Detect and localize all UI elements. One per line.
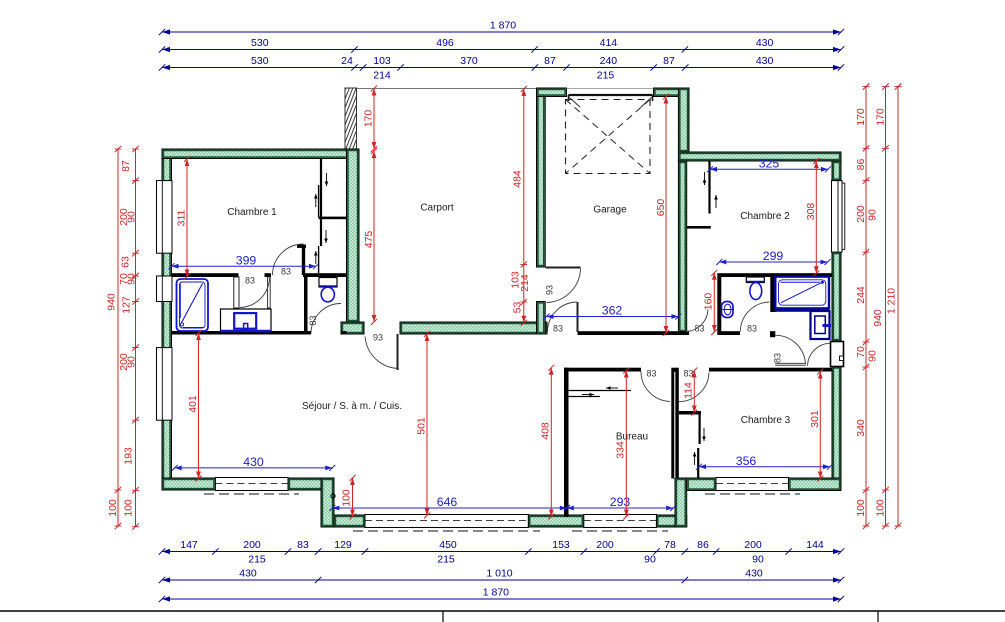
svg-text:200: 200 (243, 539, 261, 551)
svg-text:646: 646 (437, 495, 458, 509)
svg-text:114: 114 (683, 382, 695, 399)
svg-text:90: 90 (126, 273, 138, 285)
svg-text:334: 334 (615, 441, 627, 459)
svg-text:90: 90 (126, 356, 138, 368)
svg-text:200: 200 (596, 539, 614, 551)
svg-text:170: 170 (363, 110, 375, 128)
svg-text:90: 90 (644, 554, 656, 566)
svg-text:301: 301 (809, 410, 821, 428)
svg-text:147: 147 (180, 539, 198, 551)
svg-text:340: 340 (855, 419, 867, 437)
svg-text:90: 90 (867, 350, 879, 362)
svg-text:83: 83 (747, 324, 757, 334)
svg-text:Chambre 1: Chambre 1 (227, 207, 277, 218)
svg-text:293: 293 (610, 495, 631, 509)
svg-text:200: 200 (855, 205, 867, 223)
svg-text:1 870: 1 870 (490, 20, 516, 32)
svg-text:299: 299 (763, 249, 784, 263)
svg-text:430: 430 (756, 37, 774, 49)
svg-text:63: 63 (120, 256, 132, 268)
svg-text:430: 430 (243, 455, 264, 469)
svg-text:83: 83 (773, 353, 783, 363)
svg-text:399: 399 (236, 253, 257, 267)
svg-text:87: 87 (120, 160, 132, 172)
svg-text:450: 450 (439, 539, 457, 551)
svg-text:Séjour / S. à m. / Cuis.: Séjour / S. à m. / Cuis. (302, 401, 402, 412)
svg-text:Bureau: Bureau (616, 432, 648, 443)
svg-text:200: 200 (744, 539, 762, 551)
svg-text:160: 160 (703, 293, 715, 311)
svg-text:78: 78 (664, 539, 676, 551)
svg-text:Carport: Carport (420, 203, 454, 214)
svg-text:100: 100 (341, 489, 353, 507)
svg-text:83: 83 (646, 369, 656, 379)
svg-text:496: 496 (436, 37, 454, 49)
svg-text:127: 127 (121, 296, 133, 314)
svg-text:1 010: 1 010 (486, 568, 512, 580)
svg-text:311: 311 (176, 209, 188, 226)
svg-text:100: 100 (107, 499, 119, 517)
svg-text:103: 103 (373, 55, 391, 67)
svg-text:93: 93 (373, 333, 383, 343)
svg-text:83: 83 (308, 315, 318, 325)
svg-text:170: 170 (855, 108, 867, 126)
svg-text:Garage: Garage (593, 205, 627, 216)
svg-text:87: 87 (544, 55, 556, 67)
svg-text:86: 86 (697, 539, 709, 551)
svg-text:Chambre 2: Chambre 2 (740, 211, 790, 222)
svg-text:650: 650 (655, 199, 667, 217)
svg-text:129: 129 (334, 539, 352, 551)
svg-text:370: 370 (460, 55, 478, 67)
svg-text:70: 70 (855, 346, 867, 358)
svg-text:83: 83 (245, 276, 255, 286)
svg-text:83: 83 (694, 324, 704, 334)
svg-text:1 210: 1 210 (886, 288, 898, 314)
svg-text:940: 940 (872, 309, 884, 327)
svg-text:940: 940 (106, 293, 118, 311)
svg-text:356: 356 (736, 454, 757, 468)
svg-text:414: 414 (600, 37, 618, 49)
svg-text:430: 430 (745, 568, 763, 580)
svg-text:430: 430 (239, 568, 257, 580)
svg-text:475: 475 (363, 231, 375, 249)
svg-text:24: 24 (341, 55, 353, 67)
svg-text:90: 90 (752, 554, 764, 566)
svg-text:408: 408 (540, 422, 552, 440)
svg-text:501: 501 (416, 417, 428, 435)
svg-text:214: 214 (373, 70, 391, 82)
svg-text:325: 325 (759, 157, 780, 171)
svg-text:215: 215 (248, 554, 266, 566)
svg-text:193: 193 (123, 447, 135, 465)
svg-text:244: 244 (855, 286, 867, 304)
svg-text:170: 170 (875, 108, 887, 126)
svg-text:240: 240 (600, 55, 618, 67)
svg-text:401: 401 (187, 395, 199, 413)
svg-text:215: 215 (597, 70, 615, 82)
svg-text:83: 83 (281, 267, 291, 277)
svg-text:1 870: 1 870 (483, 587, 509, 599)
svg-text:53: 53 (512, 302, 524, 314)
svg-text:90: 90 (126, 211, 138, 223)
svg-text:215: 215 (437, 554, 455, 566)
svg-text:308: 308 (805, 203, 817, 221)
svg-text:362: 362 (602, 304, 623, 318)
svg-text:86: 86 (855, 159, 867, 171)
svg-text:100: 100 (875, 499, 887, 517)
svg-text:530: 530 (251, 55, 269, 67)
svg-text:83: 83 (553, 324, 563, 334)
svg-text:100: 100 (855, 499, 867, 517)
svg-text:87: 87 (663, 55, 675, 67)
svg-text:83: 83 (297, 539, 309, 551)
svg-text:100: 100 (123, 499, 135, 517)
svg-text:153: 153 (552, 539, 570, 551)
svg-text:90: 90 (867, 209, 879, 221)
svg-text:214: 214 (519, 274, 531, 292)
svg-text:144: 144 (806, 539, 824, 551)
svg-text:93: 93 (545, 285, 555, 295)
svg-text:484: 484 (512, 170, 524, 188)
svg-text:430: 430 (756, 55, 774, 67)
svg-text:Chambre 3: Chambre 3 (741, 415, 791, 426)
svg-text:530: 530 (251, 37, 269, 49)
